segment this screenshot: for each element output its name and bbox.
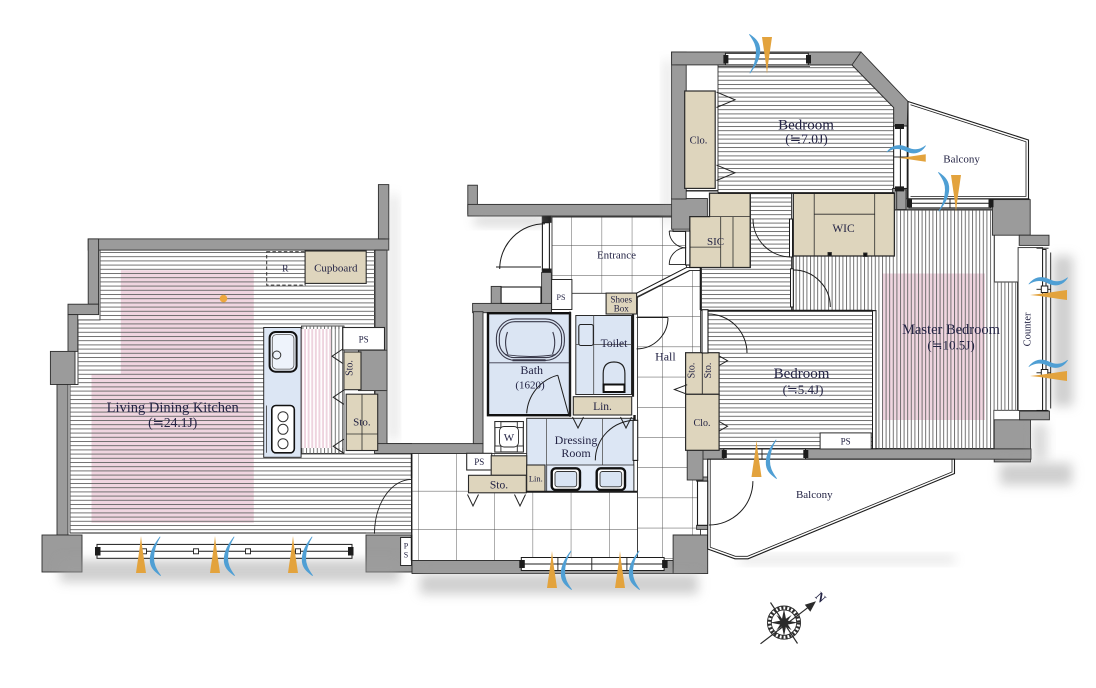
- svg-text:Dressing: Dressing: [555, 433, 598, 447]
- svg-text:Entrance: Entrance: [597, 250, 636, 262]
- svg-text:Master Bedroom: Master Bedroom: [902, 322, 1001, 338]
- svg-text:(≒10.5J): (≒10.5J): [927, 338, 974, 353]
- svg-text:Lin.: Lin.: [593, 401, 612, 413]
- svg-text:(≒5.4J): (≒5.4J): [783, 382, 824, 397]
- svg-text:W: W: [504, 432, 515, 444]
- svg-text:Bath: Bath: [520, 363, 543, 377]
- svg-text:Sto.: Sto.: [687, 363, 698, 379]
- svg-text:Box: Box: [614, 304, 630, 314]
- svg-text:WIC: WIC: [832, 223, 855, 235]
- svg-text:Balcony: Balcony: [943, 154, 980, 166]
- svg-text:Sto.: Sto.: [490, 480, 508, 492]
- svg-text:Sto.: Sto.: [345, 360, 356, 376]
- svg-text:Clo.: Clo.: [694, 418, 711, 429]
- svg-text:(1620): (1620): [515, 380, 545, 392]
- svg-text:Hall: Hall: [655, 350, 676, 364]
- svg-text:Balcony: Balcony: [796, 489, 833, 501]
- svg-text:PS: PS: [474, 457, 484, 467]
- svg-text:Living Dining Kitchen: Living Dining Kitchen: [107, 400, 240, 416]
- svg-text:PS: PS: [841, 437, 851, 447]
- svg-text:PS: PS: [359, 335, 369, 345]
- svg-text:P: P: [404, 542, 409, 551]
- svg-text:Cupboard: Cupboard: [314, 263, 358, 275]
- svg-text:Clo.: Clo.: [690, 136, 708, 147]
- svg-text:PS: PS: [557, 293, 566, 302]
- svg-text:Bedroom: Bedroom: [774, 366, 830, 382]
- svg-text:Counter: Counter: [1023, 312, 1034, 346]
- svg-text:Lin.: Lin.: [529, 474, 543, 484]
- svg-text:Sto.: Sto.: [353, 417, 371, 429]
- svg-text:R: R: [282, 265, 289, 275]
- svg-text:Room: Room: [561, 446, 591, 460]
- svg-text:S: S: [404, 551, 408, 560]
- svg-text:(≒24.1J): (≒24.1J): [148, 415, 197, 430]
- svg-text:Sto.: Sto.: [703, 363, 714, 379]
- svg-text:(≒7.0J): (≒7.0J): [785, 132, 827, 147]
- svg-text:SIC: SIC: [707, 236, 724, 248]
- svg-text:Toilet: Toilet: [601, 338, 628, 350]
